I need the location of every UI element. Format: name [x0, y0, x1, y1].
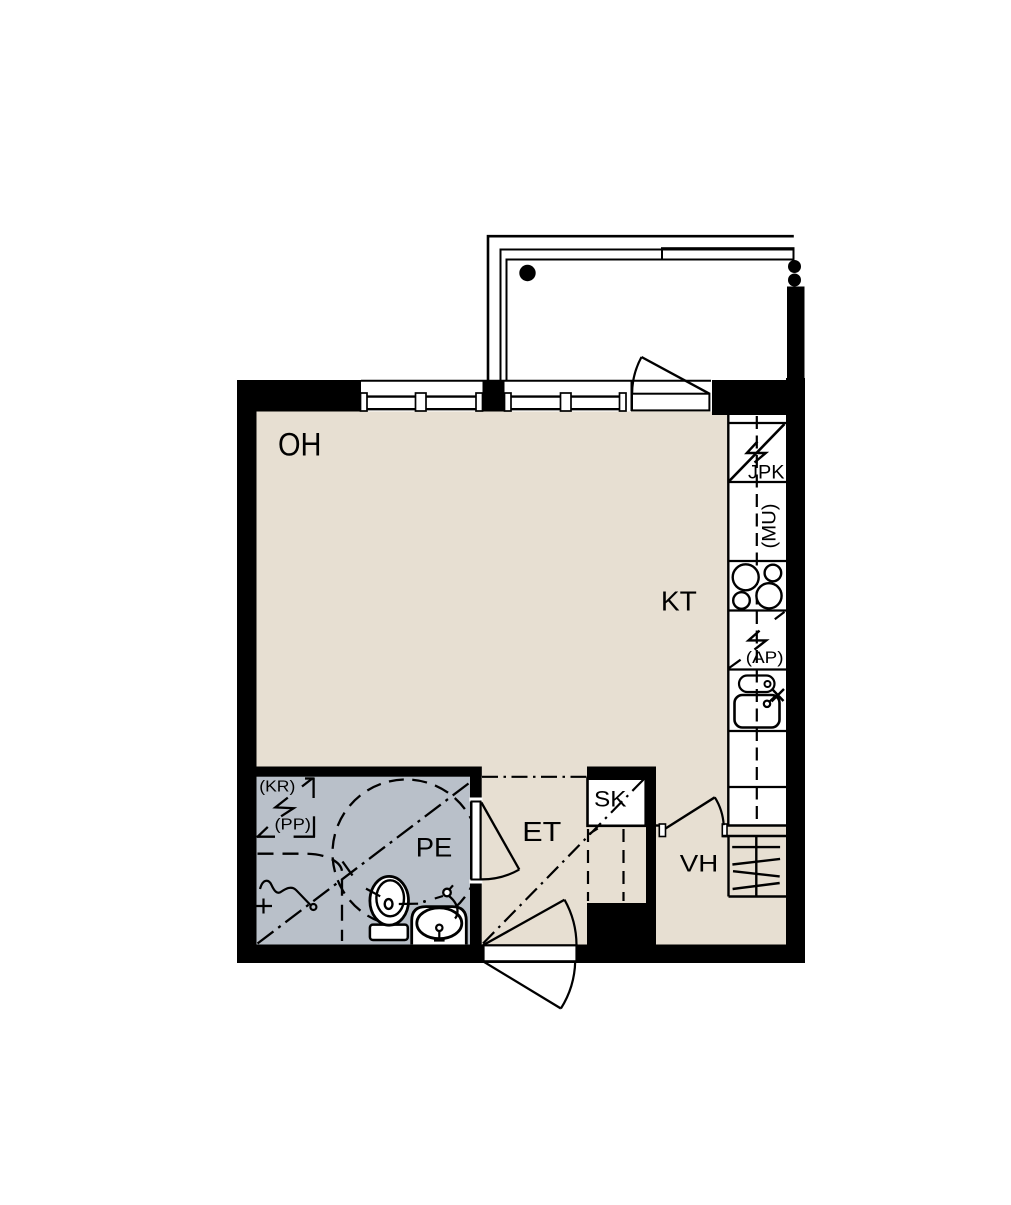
svg-text:(PP): (PP): [275, 817, 311, 834]
svg-text:SK: SK: [594, 787, 627, 812]
svg-text:(KR): (KR): [259, 779, 295, 796]
svg-text:PE: PE: [416, 832, 453, 862]
svg-text:(AP): (AP): [746, 648, 784, 667]
svg-text:OH: OH: [278, 427, 322, 463]
svg-text:KT: KT: [661, 585, 697, 616]
svg-text:VH: VH: [680, 850, 719, 877]
svg-text:JPK: JPK: [748, 463, 785, 484]
svg-text:ET: ET: [522, 816, 561, 847]
svg-text:(MU): (MU): [760, 504, 781, 549]
